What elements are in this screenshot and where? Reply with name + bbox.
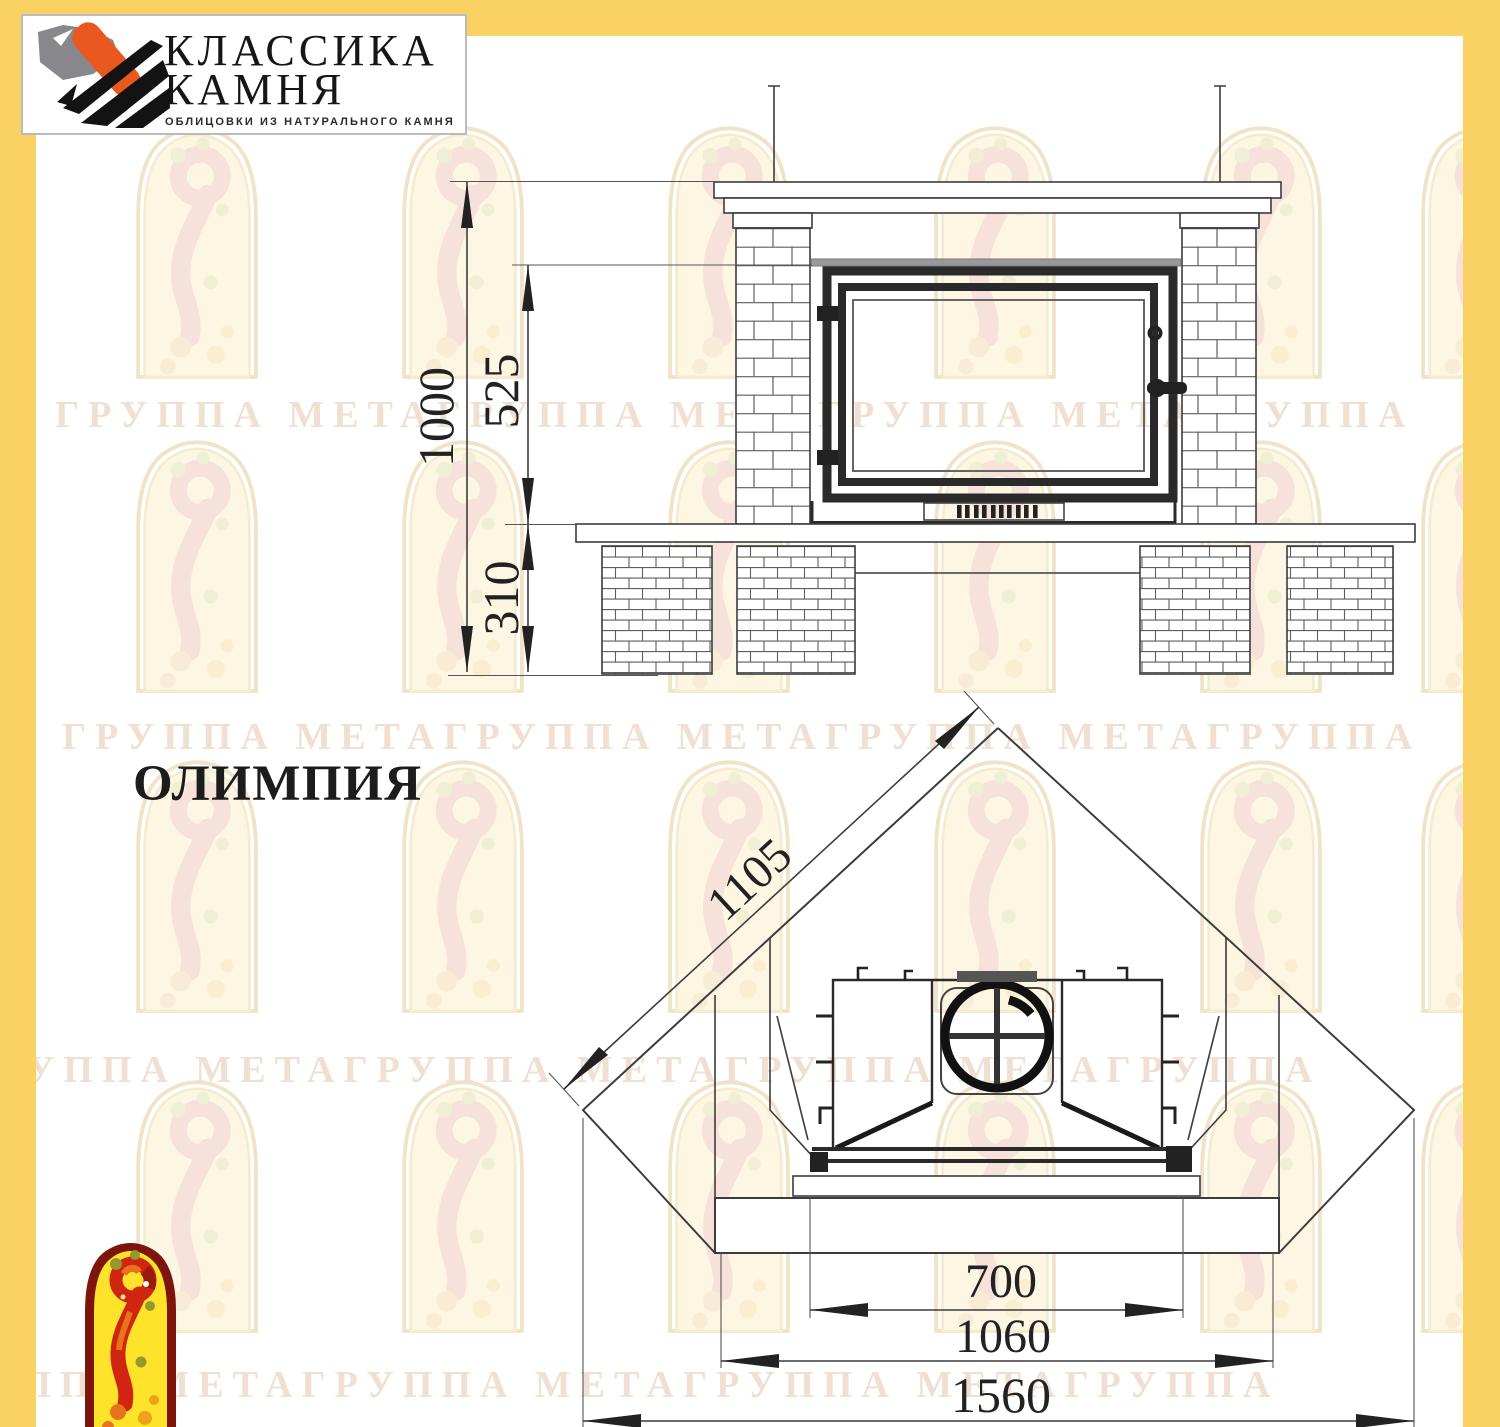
svg-text:1000: 1000: [408, 367, 464, 467]
svg-text:310: 310: [473, 561, 529, 636]
svg-text:1560: 1560: [951, 1367, 1051, 1423]
svg-text:ОЛИМПИЯ: ОЛИМПИЯ: [133, 756, 423, 812]
svg-text:1060: 1060: [955, 1310, 1051, 1363]
svg-text:700: 700: [965, 1255, 1037, 1308]
svg-text:ОБЛИЦОВКИ ИЗ НАТУРАЛЬНОГО КАМН: ОБЛИЦОВКИ ИЗ НАТУРАЛЬНОГО КАМНЯ: [165, 116, 455, 128]
svg-text:1105: 1105: [697, 828, 802, 931]
svg-text:КАМНЯ: КАМНЯ: [164, 65, 345, 114]
svg-text:525: 525: [473, 354, 529, 429]
